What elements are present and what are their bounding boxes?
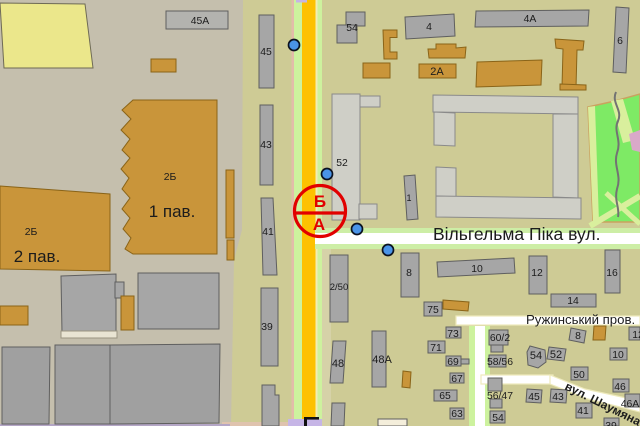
svg-text:2/50: 2/50 <box>330 282 349 293</box>
svg-text:71: 71 <box>430 343 442 354</box>
svg-text:48А: 48А <box>372 354 392 366</box>
svg-text:58/56: 58/56 <box>487 357 513 368</box>
svg-text:52: 52 <box>336 158 348 169</box>
svg-text:16: 16 <box>606 268 618 279</box>
svg-text:Вільгельма Піка вул.: Вільгельма Піка вул. <box>433 224 600 244</box>
svg-text:2Б: 2Б <box>164 172 177 183</box>
svg-text:60/2: 60/2 <box>490 333 510 344</box>
svg-text:54: 54 <box>530 350 542 362</box>
svg-text:45: 45 <box>260 47 272 58</box>
svg-text:1: 1 <box>406 193 411 203</box>
svg-text:12: 12 <box>531 268 543 279</box>
svg-text:Ружинський пров.: Ружинський пров. <box>526 312 635 327</box>
svg-text:Б: Б <box>314 192 326 211</box>
svg-text:69: 69 <box>447 357 459 368</box>
svg-text:73: 73 <box>447 329 459 340</box>
svg-text:12: 12 <box>632 330 640 341</box>
svg-text:А: А <box>313 215 325 234</box>
svg-text:56/47: 56/47 <box>487 391 513 402</box>
svg-text:63: 63 <box>451 409 463 420</box>
svg-text:4: 4 <box>426 22 432 33</box>
svg-text:54: 54 <box>492 413 504 424</box>
svg-text:8: 8 <box>575 331 581 342</box>
svg-text:46: 46 <box>614 382 626 393</box>
svg-text:41: 41 <box>262 227 274 238</box>
svg-text:67: 67 <box>451 374 463 385</box>
svg-text:65: 65 <box>439 391 451 402</box>
svg-text:52: 52 <box>550 349 562 361</box>
svg-text:45А: 45А <box>191 16 210 27</box>
svg-text:50: 50 <box>573 370 585 381</box>
svg-text:41: 41 <box>577 406 589 417</box>
svg-text:10: 10 <box>612 350 624 361</box>
svg-text:1 пав.: 1 пав. <box>149 202 196 221</box>
svg-text:43: 43 <box>552 392 564 403</box>
svg-text:2Б: 2Б <box>25 227 38 238</box>
svg-text:43: 43 <box>260 140 272 151</box>
svg-text:8: 8 <box>406 268 412 279</box>
svg-text:4А: 4А <box>524 14 537 25</box>
svg-text:45: 45 <box>528 392 540 403</box>
svg-text:39: 39 <box>261 322 273 333</box>
svg-text:10: 10 <box>471 264 483 275</box>
svg-text:39: 39 <box>605 421 617 426</box>
svg-text:2А: 2А <box>430 66 444 78</box>
svg-text:14: 14 <box>567 296 579 307</box>
svg-text:6: 6 <box>617 36 623 47</box>
svg-text:75: 75 <box>427 305 439 316</box>
svg-text:54: 54 <box>346 23 358 34</box>
svg-text:2 пав.: 2 пав. <box>14 247 61 266</box>
svg-text:48: 48 <box>332 358 344 370</box>
